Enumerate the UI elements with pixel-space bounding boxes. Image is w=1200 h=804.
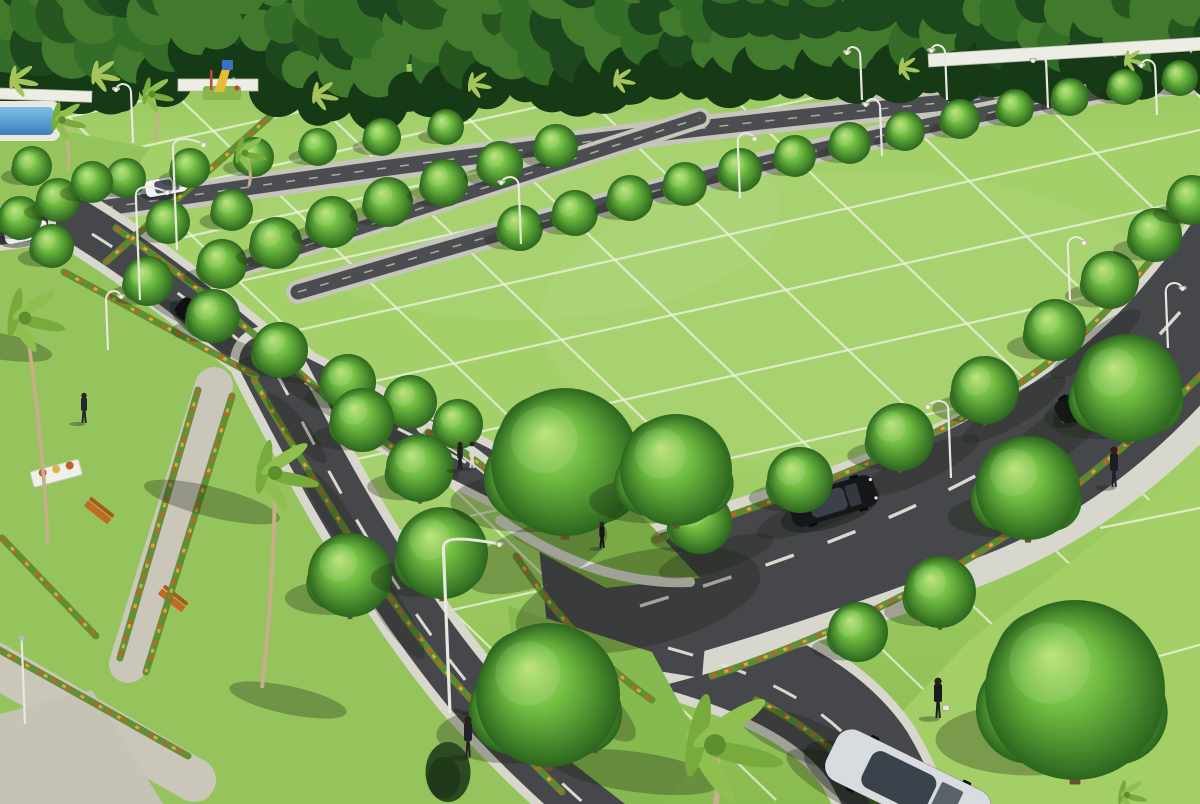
tree-highlight [875,412,906,443]
tree-highlight [635,428,685,478]
person-leg [85,410,86,424]
tree-highlight [511,407,578,474]
person-torso [457,446,463,459]
palm-crown-center [1124,792,1130,798]
lamp-glow [753,137,757,141]
tree-highlight [776,455,806,485]
person-leg [469,739,470,757]
lamp-glow [1181,287,1185,291]
person-leg [470,456,471,468]
tree-highlight [328,361,353,386]
tree-highlight [483,147,504,168]
person-leg [458,457,459,470]
lamp-glow [864,103,868,107]
tree-highlight [1009,623,1090,704]
scene-canvas [0,0,1200,804]
tree-highlight [613,181,634,202]
tree-highlight [1056,83,1073,100]
tree-highlight [558,196,579,217]
tree-highlight [319,544,357,582]
aerial-render-plotted-land-development [0,0,1200,804]
tree-highlight [669,168,689,188]
tree-highlight [890,116,908,134]
palm-crown-center [58,116,66,124]
tree-highlight [17,151,35,169]
lamp-top [19,635,24,640]
lamp-glow [119,295,123,299]
tree-highlight [724,154,744,174]
tree-highlight [339,396,368,425]
person-leg [473,456,474,468]
lamp-glow [202,143,206,147]
conifer-bush [426,742,471,802]
tree-highlight [204,245,227,268]
tree-highlight [1089,348,1138,397]
playground-post [210,70,213,90]
tree-highlight [368,123,385,140]
person-leg [939,700,940,718]
tree-highlight [42,184,62,204]
person-leg [466,739,467,757]
person-head [464,717,471,724]
person-torso [599,526,604,538]
person-head [457,442,462,447]
palm-crown-center [241,149,248,156]
tree-highlight [260,329,285,354]
lamp-glow [845,51,849,55]
lamp-glow [114,88,118,92]
tree-highlight [440,405,463,428]
person-leg [1112,469,1113,487]
tree-highlight [390,382,414,406]
tree-highlight [836,610,863,637]
tree-highlight [257,224,280,247]
palm-crown-center [19,312,32,325]
tree-highlight [130,262,153,285]
person-leg [1115,469,1116,487]
tree-highlight [960,365,991,396]
conifer-shade [428,757,461,799]
tree-highlight [175,153,193,171]
tree-highlight [1112,74,1128,90]
person-leg [600,536,601,548]
tree-highlight [835,127,854,146]
person-leg [603,536,604,548]
tree-highlight [495,641,560,706]
person-torso [464,723,472,741]
lamp-glow [1139,64,1143,68]
tree-highlight [152,206,172,226]
palm-crown-center [268,466,282,480]
tree-highlight [1001,94,1018,111]
tree-highlight [1089,258,1115,284]
tree-highlight [313,203,336,226]
tree-highlight [1032,307,1060,335]
tree-highlight [945,104,963,122]
tree-highlight [217,194,236,213]
tree-highlight [914,565,946,597]
lamp-glow [1082,241,1086,245]
person-head [934,678,941,685]
lamp-glow [1031,59,1035,63]
tree-highlight [4,202,24,222]
tree-highlight [77,166,96,185]
tree-highlight [304,133,321,150]
lamp-glow [497,543,501,547]
palm-crown-center [148,90,155,97]
tree-highlight [370,183,393,206]
tree-highlight [111,163,129,181]
lamp-glow [926,405,930,409]
palm-crown-center [704,734,726,756]
tree-highlight [780,140,799,159]
tree-highlight [193,296,217,320]
lamp-glow [929,49,933,53]
person-head [81,393,86,398]
tree-highlight [433,114,449,130]
tree-highlight [426,165,448,187]
person-torso [1110,453,1118,471]
tree-highlight [540,130,560,150]
person-leg [82,410,83,424]
person-head [1110,447,1117,454]
tree-highlight [1174,181,1197,204]
lamp-glow [165,191,169,195]
briefcase [943,705,949,710]
tree-highlight [1135,215,1159,239]
tree-highlight [36,230,56,250]
playground-ball [235,86,240,91]
tree-highlight [395,443,426,474]
lamp-glow [499,181,503,185]
person-head [470,442,475,447]
tree-highlight [1167,65,1183,81]
person-head [600,522,605,527]
swimming-pool [0,107,54,135]
person-leg [936,700,937,718]
person-torso [81,398,87,412]
person-torso [934,684,942,702]
playground-tower [222,60,233,70]
person-torso [469,446,474,458]
tree-highlight [990,449,1037,496]
